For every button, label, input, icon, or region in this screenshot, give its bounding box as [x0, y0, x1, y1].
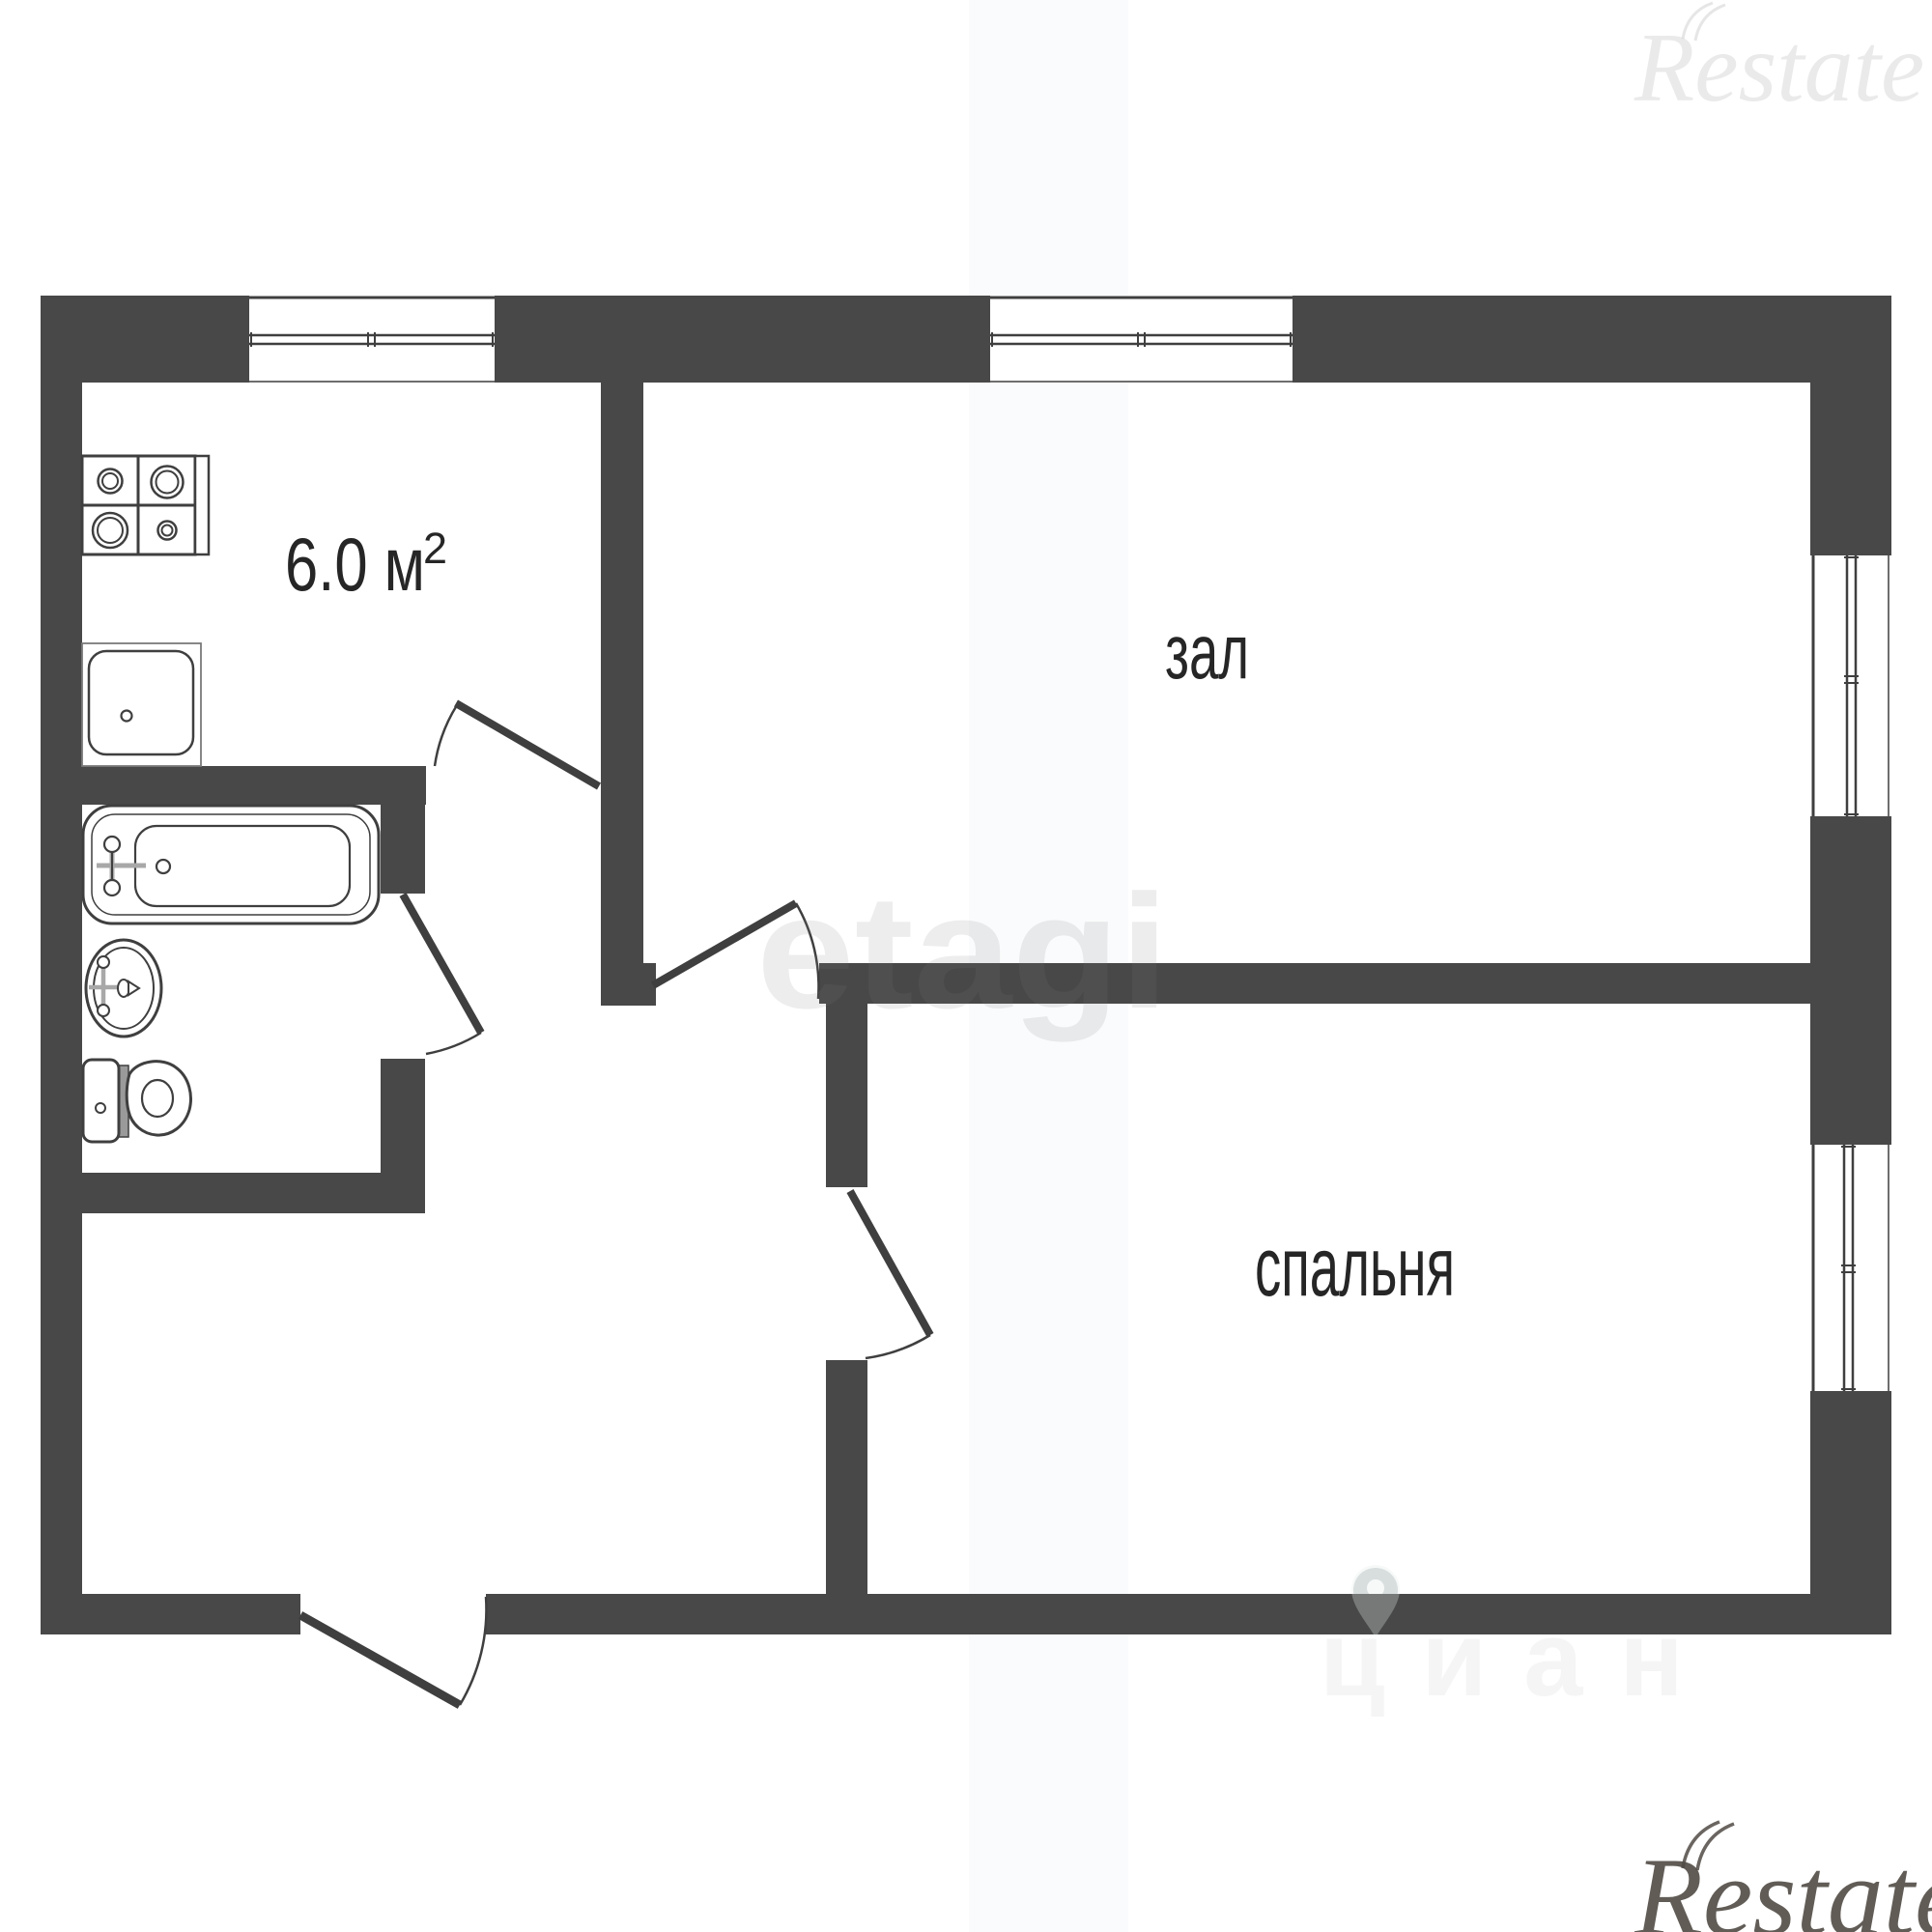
svg-text:6.0 м: 6.0 м	[285, 522, 425, 607]
svg-text:Restate: Restate	[1634, 14, 1924, 123]
svg-text:Restate: Restate	[1634, 1835, 1932, 1932]
svg-text:зал: зал	[1165, 609, 1249, 695]
svg-text:2: 2	[423, 524, 447, 573]
svg-text:циан: циан	[1320, 1600, 1720, 1719]
svg-text:etagi: etagi	[756, 861, 1169, 1042]
svg-text:спальня: спальня	[1255, 1221, 1455, 1314]
